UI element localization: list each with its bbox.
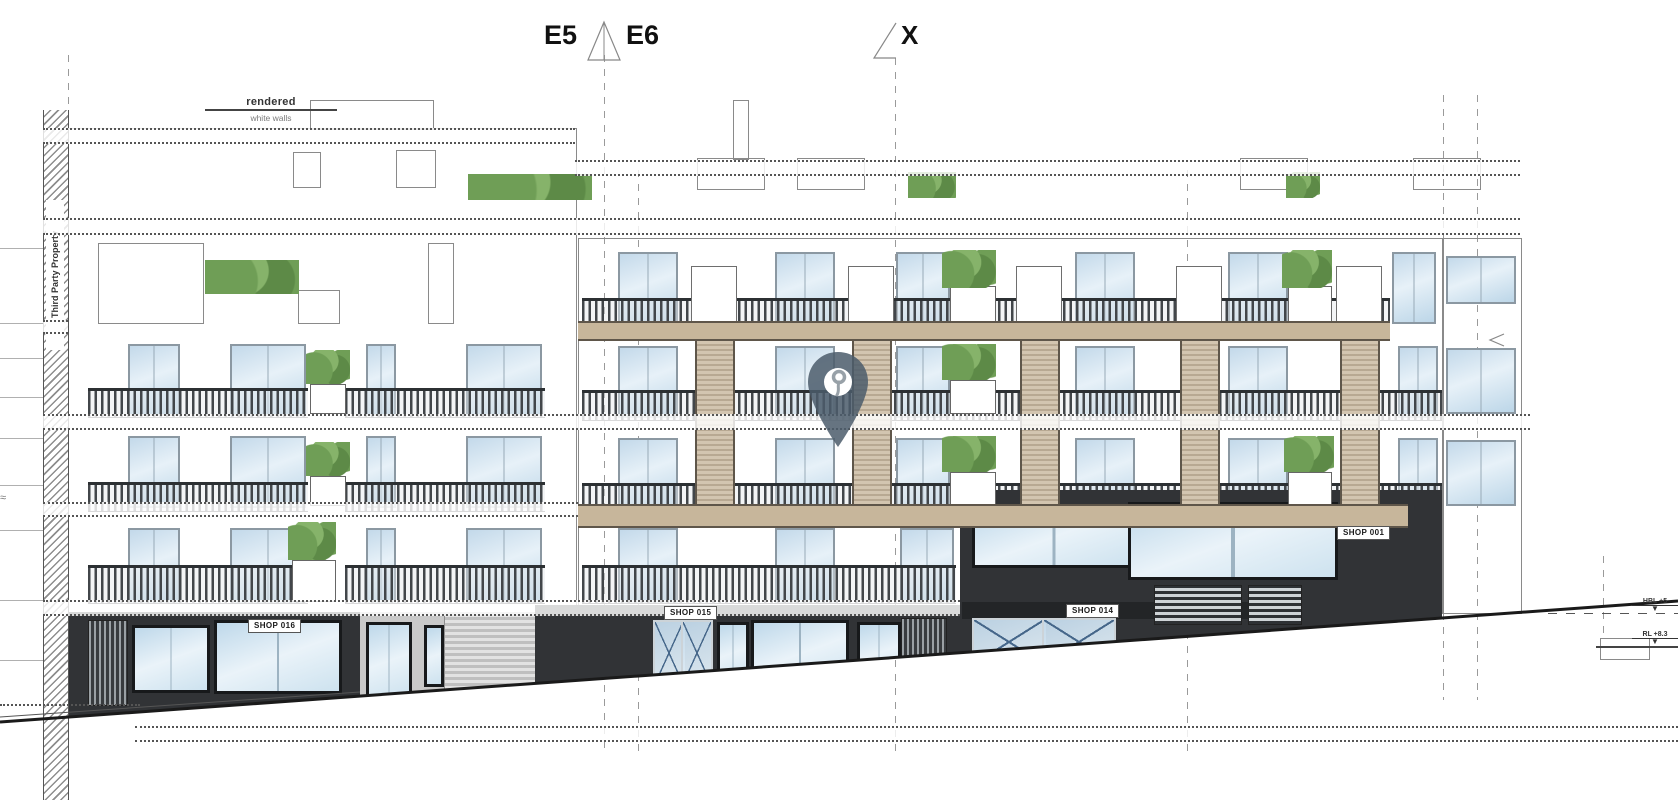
balcony-plant (942, 436, 996, 472)
balcony-plant (1282, 250, 1332, 288)
elevation-drawing-canvas: E5 E6 X rendered white walls Third Party… (0, 0, 1678, 800)
shop-015-label: SHOP 015 (664, 606, 717, 620)
note-underline (205, 109, 337, 111)
roof-structure (293, 152, 321, 188)
slat-grille (901, 618, 947, 684)
balcony-railing (345, 565, 545, 604)
balcony-planter (292, 560, 336, 602)
roof-parapet-box (848, 266, 894, 324)
timber-slab (578, 321, 1390, 341)
level-stub (0, 397, 43, 398)
shop-window (751, 620, 849, 688)
approx-symbol: ≈ (0, 492, 6, 504)
roof-parapet-box (1336, 266, 1382, 324)
balcony-plant (205, 260, 299, 294)
level-stub (0, 530, 43, 531)
section-triangle-icon (586, 20, 622, 62)
slab-dotted-band (135, 726, 1678, 742)
balcony-plant (468, 174, 592, 200)
section-marker-e6: E6 (626, 22, 659, 49)
timber-slab (578, 504, 1408, 528)
balcony-planter (950, 472, 996, 506)
slab-dotted-band (43, 218, 1520, 235)
shop-window (132, 625, 210, 693)
roller-shutter (444, 615, 536, 699)
section-marker-x: X (901, 22, 918, 48)
balcony-planter (950, 380, 996, 414)
level-rl-triangle-icon: ▼ (1632, 639, 1678, 645)
balcony-planter (1288, 286, 1332, 324)
apartment-window (1392, 252, 1436, 324)
slab-dotted-line (0, 704, 140, 708)
slab-dotted-band (43, 502, 578, 517)
balcony-plant (306, 350, 350, 384)
level-marker-rl: RL +8.3 ▼ (1632, 631, 1678, 645)
roof-structure (396, 150, 436, 188)
penthouse-wall (428, 243, 454, 324)
balcony-railing (582, 565, 956, 604)
glass-door-x (1042, 618, 1116, 666)
shopfront-zone-015 (535, 605, 960, 685)
level-stub (0, 485, 43, 486)
entrance-door (366, 622, 412, 700)
balcony-railing (88, 565, 308, 604)
facade-note-sub: white walls (205, 113, 337, 123)
apartment-window (1446, 440, 1516, 506)
louvre-grille (1248, 585, 1302, 625)
level-hbl-triangle-icon: ▼ (1632, 606, 1678, 612)
slab-dotted-band (43, 128, 575, 144)
level-stub (0, 438, 43, 439)
balcony-planter (950, 286, 996, 324)
shop-016-label: SHOP 016 (248, 619, 301, 633)
level-stub (0, 248, 43, 249)
narrow-window (424, 625, 444, 687)
glass-door-x (681, 620, 713, 686)
shop-001-label: SHOP 001 (1337, 526, 1390, 540)
roof-parapet-box (691, 266, 737, 324)
balcony-plant (1284, 436, 1334, 472)
roof-flue (733, 100, 749, 160)
entrance-zone (360, 612, 535, 700)
balcony-plant (942, 344, 996, 380)
slab-dotted-band (43, 600, 960, 616)
slat-grille (88, 620, 128, 706)
balcony-plant (306, 442, 350, 476)
level-stub (0, 358, 43, 359)
balcony-planter (1288, 472, 1332, 506)
section-half-triangle-icon (871, 21, 899, 61)
roof-parapet-box (1016, 266, 1062, 324)
level-rl-line (1596, 646, 1678, 648)
slab-dotted-band (43, 320, 68, 334)
level-stub (0, 600, 43, 601)
section-marker-e5: E5 (544, 22, 577, 49)
map-pin-icon[interactable] (808, 352, 868, 448)
shop-window (717, 622, 749, 684)
gridline (1603, 556, 1604, 640)
shop-014-label: SHOP 014 (1066, 604, 1119, 618)
apartment-window (1446, 348, 1516, 414)
facade-note-title: rendered (205, 96, 337, 108)
slab-dotted-band (43, 414, 1530, 430)
level-hbl-dashline (1548, 613, 1678, 614)
apartment-window (1446, 256, 1516, 304)
level-stub (0, 660, 43, 661)
louvre-grille (1154, 585, 1242, 625)
level-marker-hbl: HBL +5 ▼ (1632, 598, 1678, 612)
slab-dotted-band (575, 160, 1520, 176)
balcony-planter (310, 384, 346, 414)
penthouse-wall (98, 243, 204, 324)
level-stub (0, 323, 43, 324)
balcony-plant (942, 250, 996, 288)
facade-note: rendered white walls (205, 96, 337, 123)
roof-planter (298, 290, 340, 324)
glass-door-x (972, 618, 1046, 666)
balcony-plant (288, 522, 336, 560)
roof-parapet-box (1176, 266, 1222, 324)
